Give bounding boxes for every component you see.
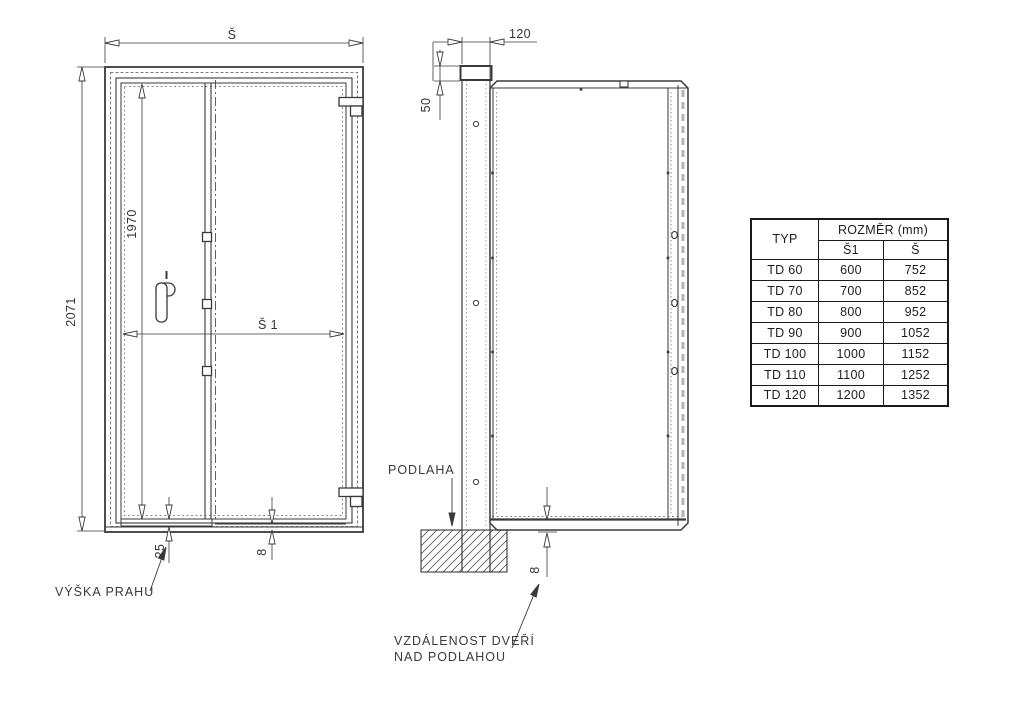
table-row: TD 60 600 752 — [751, 259, 948, 280]
s-cell: 1352 — [884, 385, 949, 406]
door-handle — [156, 271, 175, 322]
s-cell: 752 — [884, 259, 949, 280]
s-cell: 1152 — [884, 343, 949, 364]
dim-opening-width — [123, 331, 344, 337]
dim-overall-height — [77, 67, 104, 531]
dim-label-opening-height: 1970 — [125, 209, 139, 238]
type-cell: TD 110 — [751, 364, 819, 385]
dim-opening-height — [139, 84, 145, 519]
s1-cell: 900 — [819, 322, 884, 343]
s1-cell: 1200 — [819, 385, 884, 406]
s-cell: 1052 — [884, 322, 949, 343]
type-cell: TD 60 — [751, 259, 819, 280]
frame-post-side — [461, 66, 492, 572]
s-cell: 852 — [884, 280, 949, 301]
type-cell: TD 80 — [751, 301, 819, 322]
table-row: TD 70 700 852 — [751, 280, 948, 301]
threshold-note: VÝŠKA PRAHU — [55, 584, 154, 599]
post-cap — [461, 66, 492, 80]
side-view — [421, 37, 688, 648]
s1-cell: 1000 — [819, 343, 884, 364]
floor-block — [421, 530, 507, 572]
dim-label-threshold: 25 — [153, 544, 167, 559]
lock-point — [672, 299, 678, 306]
floor-label: PODLAHA — [388, 463, 455, 477]
dim-label-frame-depth: 120 — [509, 27, 531, 41]
lock-point — [672, 367, 678, 374]
s1-cell: 1100 — [819, 364, 884, 385]
floor-leader — [449, 478, 455, 526]
type-cell: TD 100 — [751, 343, 819, 364]
dim-label-bottom-gap: 8 — [255, 548, 269, 555]
table-row: TD 120 1200 1352 — [751, 385, 948, 406]
front-view — [77, 37, 363, 591]
lock-point — [203, 233, 212, 242]
dim-label-top-offset: 50 — [419, 98, 433, 113]
lock-point — [203, 367, 212, 376]
table-header-type: TYP — [751, 219, 819, 259]
door-leaf-side — [490, 81, 688, 530]
top-notch — [620, 81, 628, 87]
floor-gap-note-line1: VZDÁLENOST DVEŘÍ — [394, 633, 535, 648]
s1-cell: 700 — [819, 280, 884, 301]
door-leaf-edge — [203, 80, 216, 520]
s-cell: 952 — [884, 301, 949, 322]
table-header-dimension: ROZMĚR (mm) — [819, 219, 949, 240]
dim-top-offset — [434, 50, 460, 120]
dim-label-overall-height: 2071 — [64, 297, 78, 326]
s1-cell: 600 — [819, 259, 884, 280]
table-header-s: Š — [884, 240, 949, 259]
dim-label-overall-width: Š — [228, 27, 237, 42]
s-cell: 1252 — [884, 364, 949, 385]
table-row: TD 90 900 1052 — [751, 322, 948, 343]
type-cell: TD 90 — [751, 322, 819, 343]
table-header-s1: Š1 — [819, 240, 884, 259]
table-row: TD 110 1100 1252 — [751, 364, 948, 385]
table-row: TD 100 1000 1152 — [751, 343, 948, 364]
type-cell: TD 120 — [751, 385, 819, 406]
door-technical-drawing: Š 2071 1970 Š 1 25 8 VÝŠKA PRAHU — [0, 0, 1021, 720]
dim-label-floor-gap: 8 — [528, 566, 542, 573]
dim-bottom-gap — [269, 497, 275, 560]
lock-point — [203, 300, 212, 309]
table-row: TD 80 800 952 — [751, 301, 948, 322]
floor-gap-note-line2: NAD PODLAHOU — [394, 650, 506, 664]
lock-point — [672, 231, 678, 238]
type-cell: TD 70 — [751, 280, 819, 301]
dim-label-opening-width: Š 1 — [258, 317, 278, 332]
door-frame-front — [105, 67, 363, 532]
size-table: TYP ROZMĚR (mm) Š1 Š TD 60 600 752 TD 70… — [750, 218, 949, 407]
s1-cell: 800 — [819, 301, 884, 322]
